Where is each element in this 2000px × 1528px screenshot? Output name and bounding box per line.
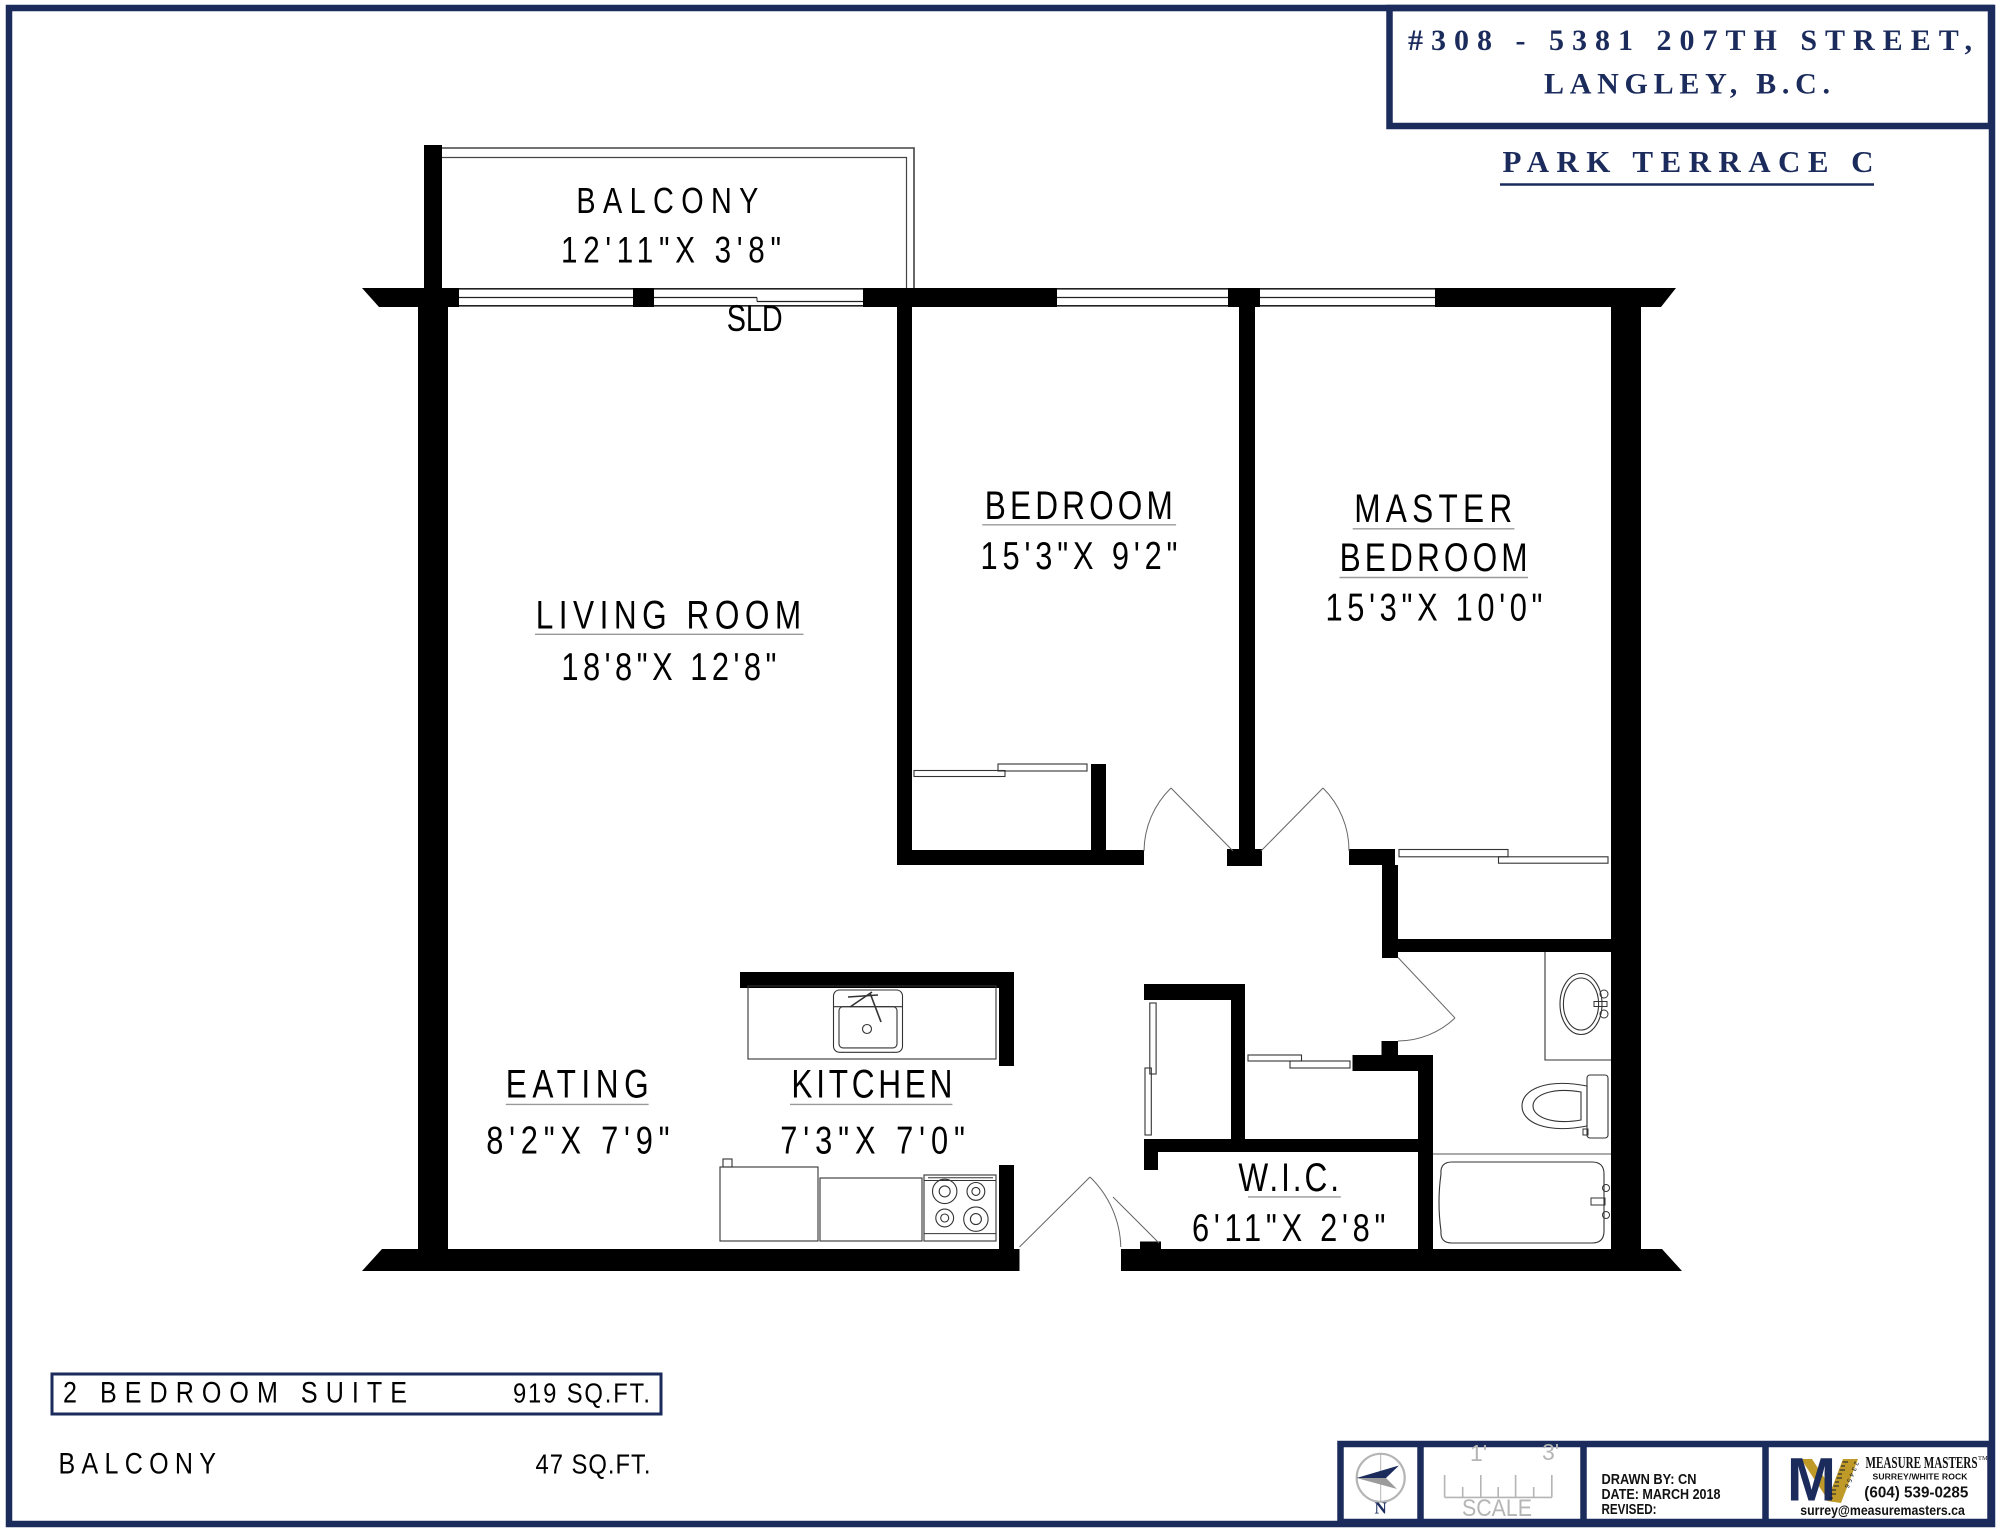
svg-text:DRAWN BY: CN: DRAWN BY: CN — [1602, 1472, 1697, 1488]
svg-text:919 SQ.FT.: 919 SQ.FT. — [513, 1377, 650, 1409]
svg-text:47 SQ.FT.: 47 SQ.FT. — [536, 1448, 651, 1480]
svg-text:BALCONY: BALCONY — [576, 180, 758, 221]
svg-text:PARK TERRACE C: PARK TERRACE C — [1503, 144, 1874, 179]
svg-text:SLD: SLD — [727, 298, 783, 340]
svg-text:18'8"X 12'8": 18'8"X 12'8" — [561, 646, 776, 689]
svg-text:2 BEDROOM SUITE: 2 BEDROOM SUITE — [63, 1375, 407, 1408]
svg-text:SURREY/WHITE ROCK: SURREY/WHITE ROCK — [1873, 1472, 1969, 1482]
svg-text:15'3"X 10'0": 15'3"X 10'0" — [1325, 586, 1542, 629]
svg-text:8'2"X 7'9": 8'2"X 7'9" — [486, 1119, 669, 1162]
svg-text:DATE: MARCH 2018: DATE: MARCH 2018 — [1602, 1487, 1721, 1503]
svg-text:MEASURE MASTERS: MEASURE MASTERS — [1866, 1453, 1978, 1472]
svg-text:3': 3' — [1542, 1439, 1559, 1465]
svg-text:7'3"X 7'0": 7'3"X 7'0" — [780, 1119, 965, 1162]
svg-text:15'3"X 9'2": 15'3"X 9'2" — [981, 535, 1178, 578]
svg-text:REVISED:: REVISED: — [1602, 1502, 1657, 1518]
svg-text:SCALE: SCALE — [1462, 1495, 1532, 1522]
svg-text:(604) 539-0285: (604) 539-0285 — [1864, 1485, 1968, 1502]
svg-text:1': 1' — [1470, 1440, 1487, 1466]
svg-text:W.I.C.: W.I.C. — [1238, 1156, 1339, 1200]
svg-text:surrey@measuremasters.ca: surrey@measuremasters.ca — [1800, 1503, 1965, 1518]
svg-text:BALCONY: BALCONY — [58, 1447, 216, 1480]
svg-text:LANGLEY, B.C.: LANGLEY, B.C. — [1544, 68, 1830, 101]
svg-text:N: N — [1375, 1499, 1388, 1518]
svg-text:TM: TM — [1978, 1455, 1988, 1462]
